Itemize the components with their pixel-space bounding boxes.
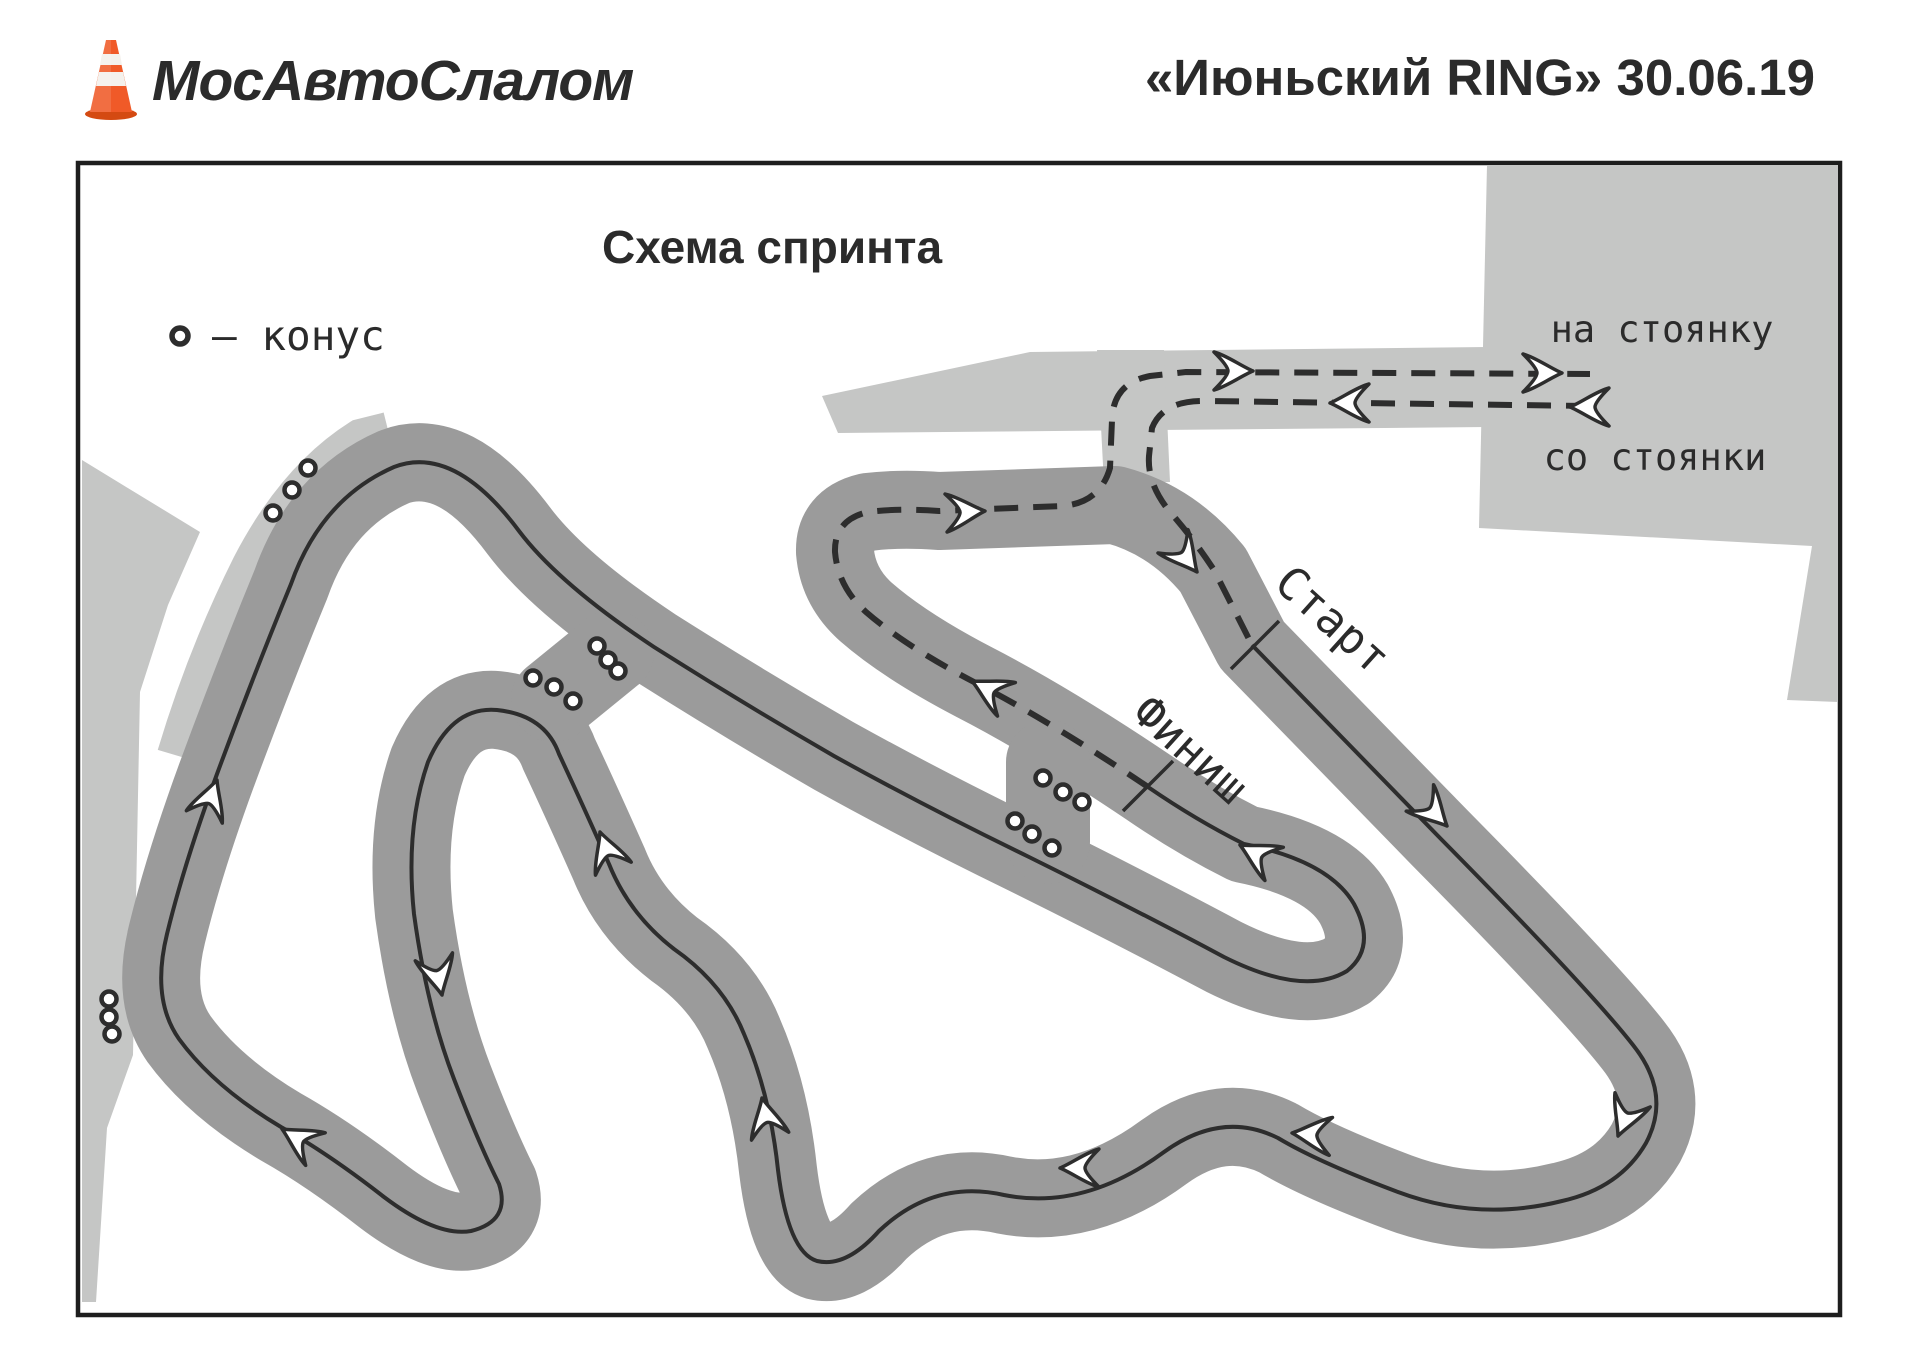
cone-marker bbox=[102, 1010, 117, 1025]
cone-marker bbox=[105, 1027, 120, 1042]
track-asphalt bbox=[161, 462, 1656, 1262]
to-parking-label: на стоянку bbox=[1551, 308, 1774, 351]
legend-cone-icon bbox=[172, 328, 188, 344]
cone-marker bbox=[266, 506, 281, 521]
cone-marker bbox=[566, 694, 581, 709]
cone-marker bbox=[1036, 771, 1051, 786]
cone-marker bbox=[285, 483, 300, 498]
map-title: Схема спринта bbox=[602, 221, 942, 273]
legend: – конус bbox=[172, 312, 385, 360]
parking-lot-area bbox=[1479, 165, 1838, 546]
cone-marker bbox=[611, 664, 626, 679]
legend-label: – конус bbox=[212, 312, 385, 360]
cone-marker bbox=[1056, 785, 1071, 800]
cone-marker bbox=[1075, 795, 1090, 810]
cone-marker bbox=[102, 992, 117, 1007]
cone-marker bbox=[547, 680, 562, 695]
sprint-scheme-map: – конус Схема спринта на стоянку со стоя… bbox=[0, 0, 1920, 1365]
cone-marker bbox=[526, 671, 541, 686]
cone-marker bbox=[590, 639, 605, 654]
cone-marker bbox=[1025, 827, 1040, 842]
cone-marker bbox=[301, 461, 316, 476]
cone-marker bbox=[1045, 841, 1060, 856]
circuit-band bbox=[161, 462, 1656, 1262]
parking-right-strip bbox=[1787, 546, 1838, 702]
cone-marker bbox=[1008, 814, 1023, 829]
page: МосАвтоСлалом «Июньский RING» 30.06.19 bbox=[0, 0, 1920, 1365]
from-parking-label: со стоянки bbox=[1544, 436, 1767, 479]
